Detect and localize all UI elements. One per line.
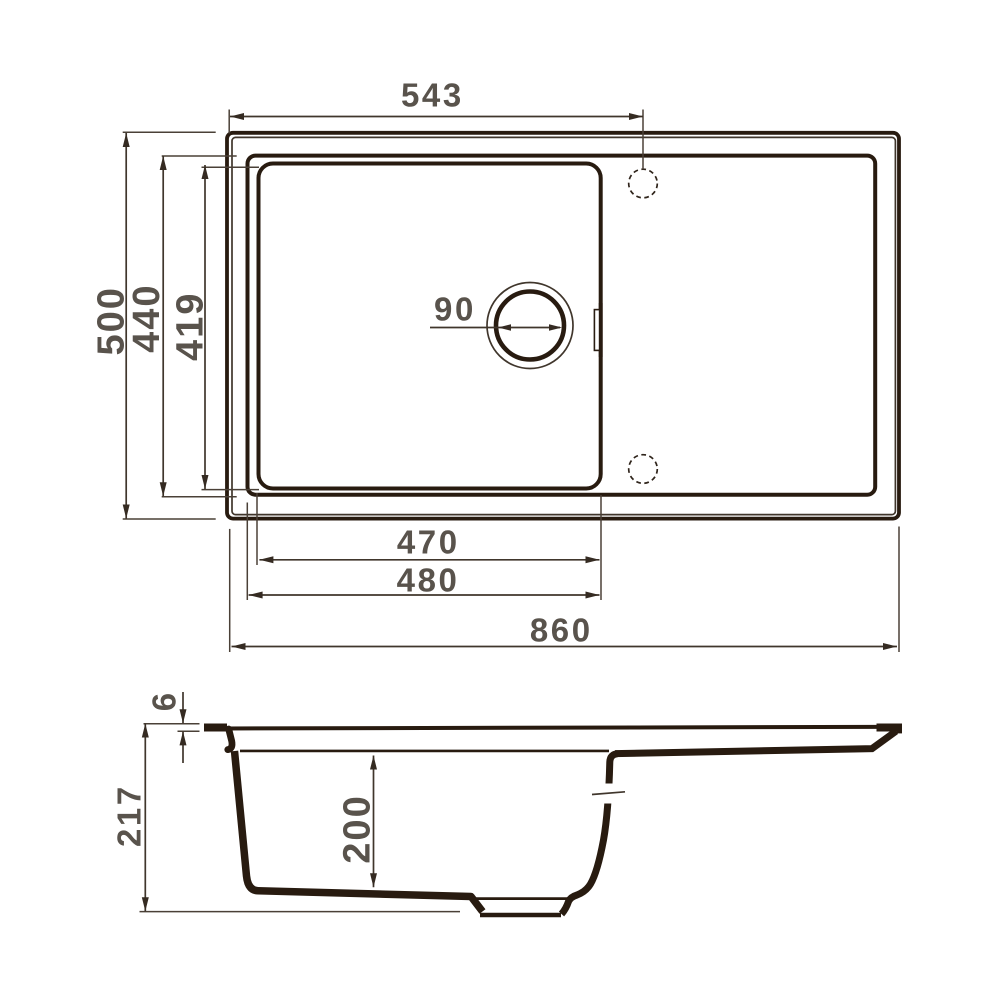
svg-text:860: 860 [530, 611, 593, 648]
svg-text:217: 217 [110, 784, 147, 847]
svg-text:480: 480 [397, 561, 460, 598]
svg-text:470: 470 [397, 524, 460, 561]
svg-text:90: 90 [434, 291, 476, 328]
svg-text:200: 200 [337, 794, 379, 863]
svg-text:543: 543 [401, 76, 464, 113]
svg-text:6: 6 [146, 690, 183, 711]
svg-text:440: 440 [126, 283, 168, 352]
svg-text:419: 419 [170, 292, 212, 361]
